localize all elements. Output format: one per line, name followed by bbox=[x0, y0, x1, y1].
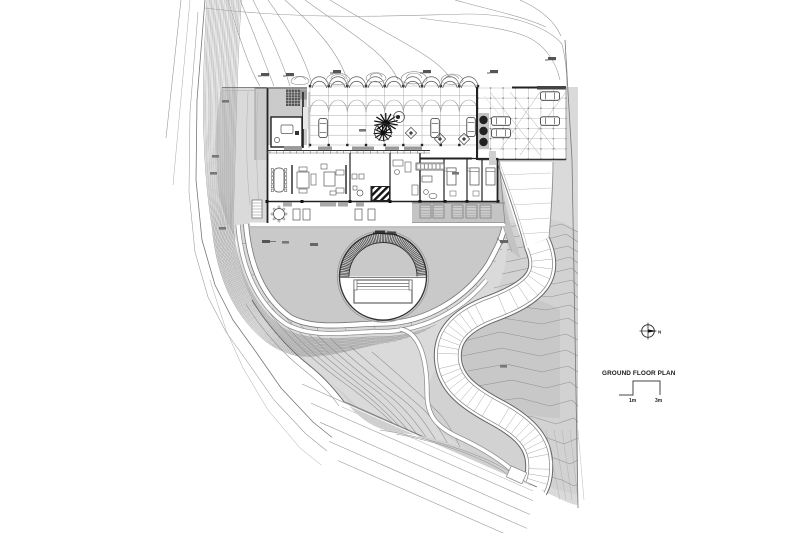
svg-text:1m: 1m bbox=[629, 398, 637, 404]
svg-text:N: N bbox=[658, 329, 661, 334]
svg-text:GROUND FLOOR PLAN: GROUND FLOOR PLAN bbox=[602, 370, 676, 377]
svg-text:3m: 3m bbox=[655, 398, 663, 404]
